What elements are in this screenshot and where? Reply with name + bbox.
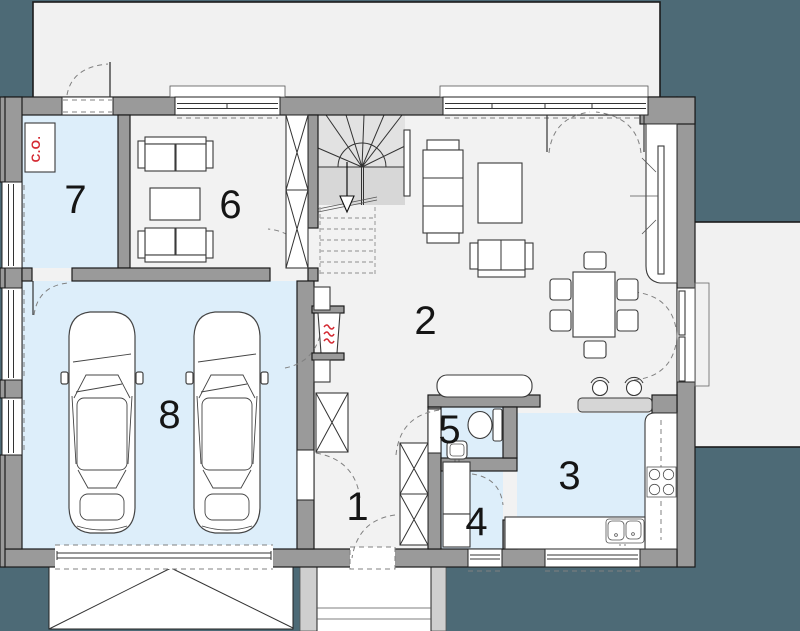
bench: [437, 375, 532, 397]
kitchen-sink: [606, 519, 644, 545]
wall-stair-side: [308, 115, 318, 228]
boiler-room-fixtures: C.O.: [25, 123, 55, 172]
room-label-boiler: 7: [64, 178, 85, 222]
room-label-wc: 5: [438, 408, 459, 452]
cooktop: [647, 467, 676, 497]
wall-kitchen-stub: [652, 395, 677, 413]
terrace: [689, 222, 800, 447]
floor-plan-page: C.O.: [0, 0, 800, 631]
stair-closet: [286, 115, 308, 268]
wall-garage-hall: [297, 281, 314, 549]
room-label-garage: 8: [158, 393, 179, 437]
room-label-study: 6: [219, 183, 240, 227]
dining-table: [573, 272, 615, 337]
boiler-tag: C.O.: [29, 136, 43, 163]
coffee-table: [478, 163, 522, 223]
upper-floor-outline: [33, 2, 660, 100]
car-left: [61, 312, 143, 533]
room-label-utility: 4: [465, 500, 487, 544]
room-label-living: 2: [414, 299, 435, 343]
study-table: [150, 188, 200, 220]
fireplace-insert: [658, 146, 664, 274]
garage-door: [55, 545, 273, 569]
room-label-kitchen: 3: [558, 454, 579, 498]
floor-plan-svg: C.O.: [0, 0, 800, 631]
room-label-hall: 1: [346, 485, 367, 529]
wall-boiler-study: [118, 115, 130, 268]
utility-window: [468, 549, 502, 571]
car-right: [186, 312, 268, 533]
entrance-porch: [300, 567, 446, 631]
tv-panel: [404, 130, 410, 196]
breakfast-bar: [578, 398, 652, 412]
toilet: [468, 412, 492, 439]
kitchen-window: [545, 549, 640, 571]
sofa: [423, 150, 463, 233]
wall-garage-north: [72, 268, 270, 281]
garage-hall-door: [297, 450, 314, 500]
driveway: [49, 567, 293, 629]
study-window: [170, 86, 285, 118]
west-windows: [2, 182, 24, 455]
